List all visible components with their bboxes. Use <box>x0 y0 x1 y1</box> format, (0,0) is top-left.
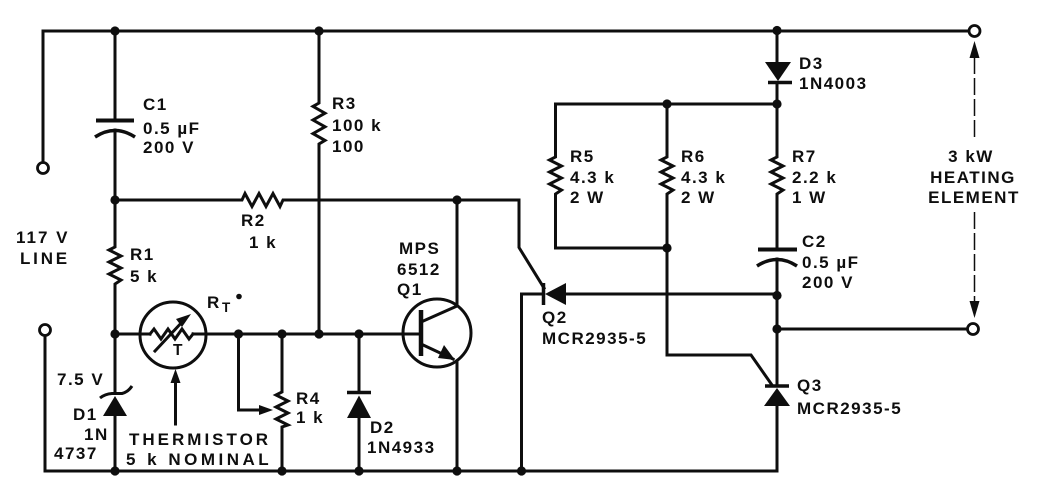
svg-text:ELEMENT: ELEMENT <box>928 188 1020 207</box>
svg-text:4.3 k: 4.3 k <box>681 168 726 187</box>
svg-text:1 k: 1 k <box>249 233 277 252</box>
svg-text:200 V: 200 V <box>802 273 854 292</box>
svg-text:R: R <box>207 293 221 312</box>
svg-text:Q2: Q2 <box>542 308 568 327</box>
svg-text:1N4933: 1N4933 <box>367 438 436 457</box>
svg-text:6512: 6512 <box>397 260 441 279</box>
svg-text:5 k: 5 k <box>130 267 158 286</box>
svg-text:THERMISTOR: THERMISTOR <box>129 430 271 449</box>
svg-text:2.2 k: 2.2 k <box>792 168 837 187</box>
svg-text:1 W: 1 W <box>792 188 827 207</box>
svg-text:Q3: Q3 <box>797 376 823 395</box>
svg-text:MCR2935-5: MCR2935-5 <box>797 399 902 418</box>
svg-text:R3: R3 <box>332 94 357 113</box>
svg-text:D3: D3 <box>799 54 824 73</box>
svg-text:2 W: 2 W <box>570 188 605 207</box>
svg-text:100 k: 100 k <box>332 116 382 135</box>
svg-text:R6: R6 <box>681 147 706 166</box>
svg-text:C2: C2 <box>802 232 827 251</box>
svg-text:Q1: Q1 <box>397 280 423 299</box>
svg-text:1N: 1N <box>84 425 109 444</box>
svg-text:0.5 µF: 0.5 µF <box>802 253 860 272</box>
svg-text:D2: D2 <box>370 418 395 437</box>
svg-text:2 W: 2 W <box>681 188 716 207</box>
svg-text:1N4003: 1N4003 <box>799 74 868 93</box>
svg-text:HEATING: HEATING <box>930 168 1016 187</box>
svg-text:7.5 V: 7.5 V <box>57 370 104 389</box>
svg-text:0.5 µF: 0.5 µF <box>143 119 201 138</box>
svg-text:MCR2935-5: MCR2935-5 <box>542 329 647 348</box>
svg-text:R5: R5 <box>570 147 595 166</box>
svg-text:T: T <box>222 300 232 315</box>
svg-text:117 V: 117 V <box>16 228 70 247</box>
svg-text:100: 100 <box>332 137 365 156</box>
svg-text:3 kW: 3 kW <box>948 147 994 166</box>
svg-text:LINE: LINE <box>20 249 70 268</box>
svg-text:5 k NOMINAL: 5 k NOMINAL <box>126 450 272 469</box>
svg-text:C1: C1 <box>143 95 168 114</box>
svg-text:D1: D1 <box>73 405 98 424</box>
svg-text:R7: R7 <box>792 147 817 166</box>
svg-text:R1: R1 <box>130 245 155 264</box>
svg-text:MPS: MPS <box>399 239 440 258</box>
svg-text:4737: 4737 <box>54 444 98 463</box>
svg-text:1 k: 1 k <box>296 408 324 427</box>
svg-text:4.3 k: 4.3 k <box>570 168 615 187</box>
svg-text:R4: R4 <box>296 389 321 408</box>
svg-text:200 V: 200 V <box>143 138 195 157</box>
svg-text:T: T <box>173 342 184 359</box>
svg-text:R2: R2 <box>241 211 266 230</box>
